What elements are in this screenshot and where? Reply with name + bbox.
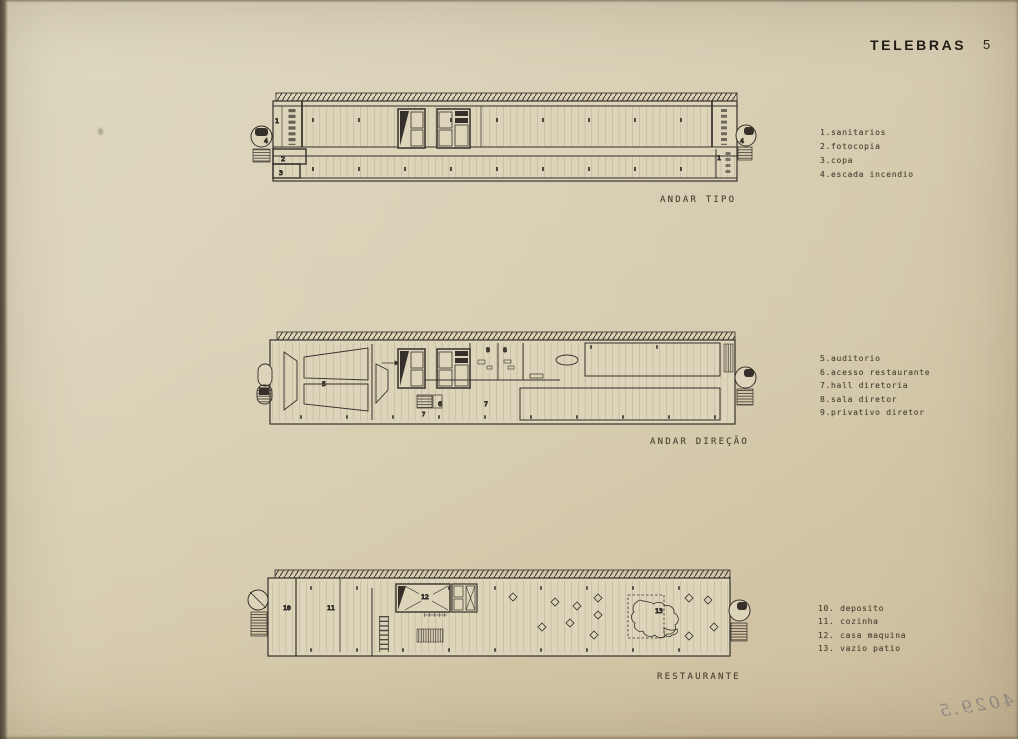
roof-hatch-band — [275, 570, 730, 578]
plan-caption-restaurante: RESTAURANTE — [657, 672, 741, 682]
legend-item: 4.escada incendio — [820, 168, 914, 182]
room-label: 11 — [327, 604, 335, 612]
legend-item: 12. casa maquina — [818, 629, 906, 642]
legend-item: 9.privativo diretor — [820, 406, 930, 420]
room-label: 10 — [283, 604, 291, 612]
legend-item: 2.fotocopia — [820, 140, 914, 154]
room-label: 2 — [281, 155, 285, 163]
elevator-core-a — [398, 109, 425, 148]
room-label: 1 — [275, 117, 279, 125]
plan-caption-andar-tipo: ANDAR TIPO — [660, 195, 736, 205]
room-label: 9 — [486, 346, 490, 354]
room-label: 13 — [655, 607, 663, 615]
floor-plan-restaurante: 10 11 12 13 — [248, 570, 750, 656]
legend-item: 7.hall diretoria — [820, 379, 930, 393]
elevator-core-a — [398, 349, 425, 388]
room-label: 6 — [438, 400, 442, 408]
roof-hatch-band — [277, 332, 735, 340]
room-label: 4 — [264, 137, 268, 145]
legend-item: 1.sanitarios — [820, 126, 914, 140]
floor-plan-andar-direcao: 5 9 8 6 7 7 — [257, 332, 756, 424]
legend-item: 11. cozinha — [818, 615, 906, 628]
room-label: 4 — [740, 137, 744, 145]
room-label: 7 — [484, 400, 488, 408]
legend-item: 8.sala diretor — [820, 393, 930, 407]
elevator-core-b — [437, 349, 470, 388]
room-label: 3 — [279, 169, 283, 177]
room-label: 7 — [422, 412, 425, 418]
stair — [417, 395, 432, 408]
legend-andar-tipo: 1.sanitarios 2.fotocopia 3.copa 4.escada… — [820, 126, 914, 182]
plan-caption-andar-direcao: ANDAR DIREÇÃO — [650, 437, 749, 447]
room-label: 8 — [503, 346, 507, 354]
legend-andar-direcao: 5.auditorio 6.acesso restaurante 7.hall … — [820, 352, 930, 420]
room-label: 1 — [717, 154, 721, 162]
legend-item: 13. vazio patio — [818, 642, 906, 655]
legend-restaurante: 10. deposito 11. cozinha 12. casa maquin… — [818, 602, 906, 656]
fire-stair-left — [258, 364, 272, 386]
kitchen-equipment — [417, 629, 443, 642]
roof-hatch-band — [276, 93, 737, 101]
legend-item: 5.auditorio — [820, 352, 930, 366]
floor-plan-andar-tipo: 1 4 2 3 1 4 — [251, 93, 756, 181]
room-label: 5 — [322, 380, 326, 388]
elevator-core — [452, 584, 477, 612]
room-label: 12 — [421, 593, 429, 601]
legend-item: 6.acesso restaurante — [820, 366, 930, 380]
legend-item: 10. deposito — [818, 602, 906, 615]
drawing-sheet: TELEBRAS 5 — [0, 0, 1018, 739]
legend-item: 3.copa — [820, 154, 914, 168]
